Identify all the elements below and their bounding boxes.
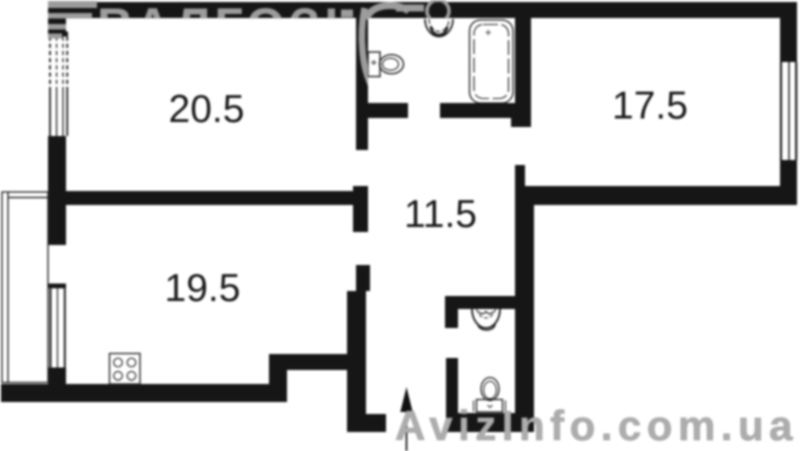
svg-text:20.5: 20.5 bbox=[169, 88, 245, 131]
svg-text:17.5: 17.5 bbox=[612, 85, 688, 128]
svg-text:11.5: 11.5 bbox=[404, 193, 477, 236]
svg-text:19.5: 19.5 bbox=[165, 267, 241, 310]
svg-text:AvizInfo.com.ua: AvizInfo.com.ua bbox=[395, 402, 798, 449]
